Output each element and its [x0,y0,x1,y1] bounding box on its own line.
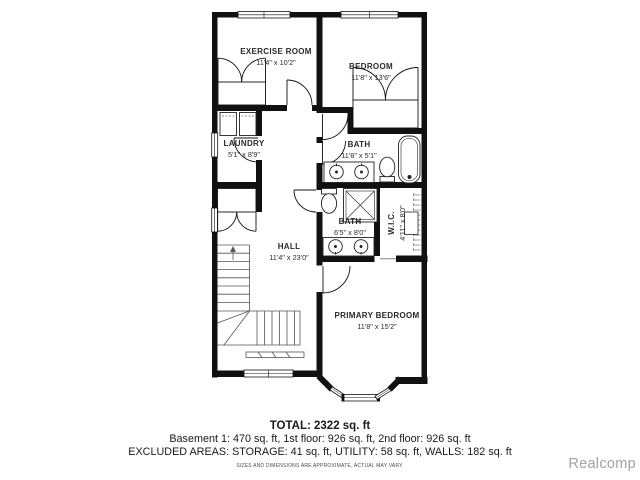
room-name: EXERCISE ROOM [240,47,311,57]
room-label-bath-lower: BATH 6'5" x 8'0" [334,217,366,237]
room-name: BEDROOM [349,62,393,72]
floor-plan-page: EXERCISE ROOM 11'4" x 10'2" BEDROOM 11'8… [0,0,640,480]
room-dims: 11'8" x 15'2" [335,322,420,331]
room-dims: 11'8" x 5'1" [341,151,376,160]
disclaimer: SIZES AND DIMENSIONS ARE APPROXIMATE, AC… [0,463,640,469]
room-name: HALL [269,242,308,252]
excluded-areas: EXCLUDED AREAS: STORAGE: 41 sq. ft, UTIL… [0,446,640,458]
room-dims: 4'11" x 8'0" [398,205,407,240]
stairs [218,245,305,358]
room-label-exercise: EXERCISE ROOM 11'4" x 10'2" [240,47,311,67]
room-dims: 11'8" x 13'6" [349,73,393,82]
room-label-primary-bedroom: PRIMARY BEDROOM 11'8" x 15'2" [335,311,420,331]
laundry-closet [218,189,257,232]
room-name: PRIMARY BEDROOM [335,311,420,321]
room-dims: 11'4" x 23'0" [269,253,308,262]
bay-window [319,376,401,402]
room-label-bedroom: BEDROOM 11'8" x 13'6" [349,62,393,82]
room-name: W.I.C. [387,205,397,240]
bathtub [399,136,421,183]
realcomp-watermark: Realcomp [568,456,636,472]
lower-bath-toilet [321,189,336,214]
lower-bath-vanity [323,238,374,257]
upper-bath-vanity [324,162,374,183]
upper-bath-toilet [380,157,395,182]
wic-closet-rail [405,193,421,252]
area-summary: TOTAL: 2322 sq. ft Basement 1: 470 sq. f… [0,420,640,469]
room-label-bath-upper: BATH 11'8" x 5'1" [341,140,376,160]
room-name: BATH [341,140,376,150]
room-dims: 6'5" x 8'0" [334,228,366,237]
floor-plan-drawing [0,0,640,480]
room-name: LAUNDRY [224,139,265,149]
room-label-wic: W.I.C. 4'11" x 8'0" [387,205,407,240]
room-name: BATH [334,217,366,227]
room-label-hall: HALL 11'4" x 23'0" [269,242,308,262]
room-label-laundry: LAUNDRY 5'1" x 8'9" [224,139,265,159]
room-dims: 5'1" x 8'9" [224,150,265,159]
floor-breakdown: Basement 1: 470 sq. ft, 1st floor: 926 s… [0,433,640,445]
room-dims: 11'4" x 10'2" [240,58,311,67]
washer [220,113,237,136]
total-area: TOTAL: 2322 sq. ft [0,420,640,432]
dryer [240,113,257,136]
